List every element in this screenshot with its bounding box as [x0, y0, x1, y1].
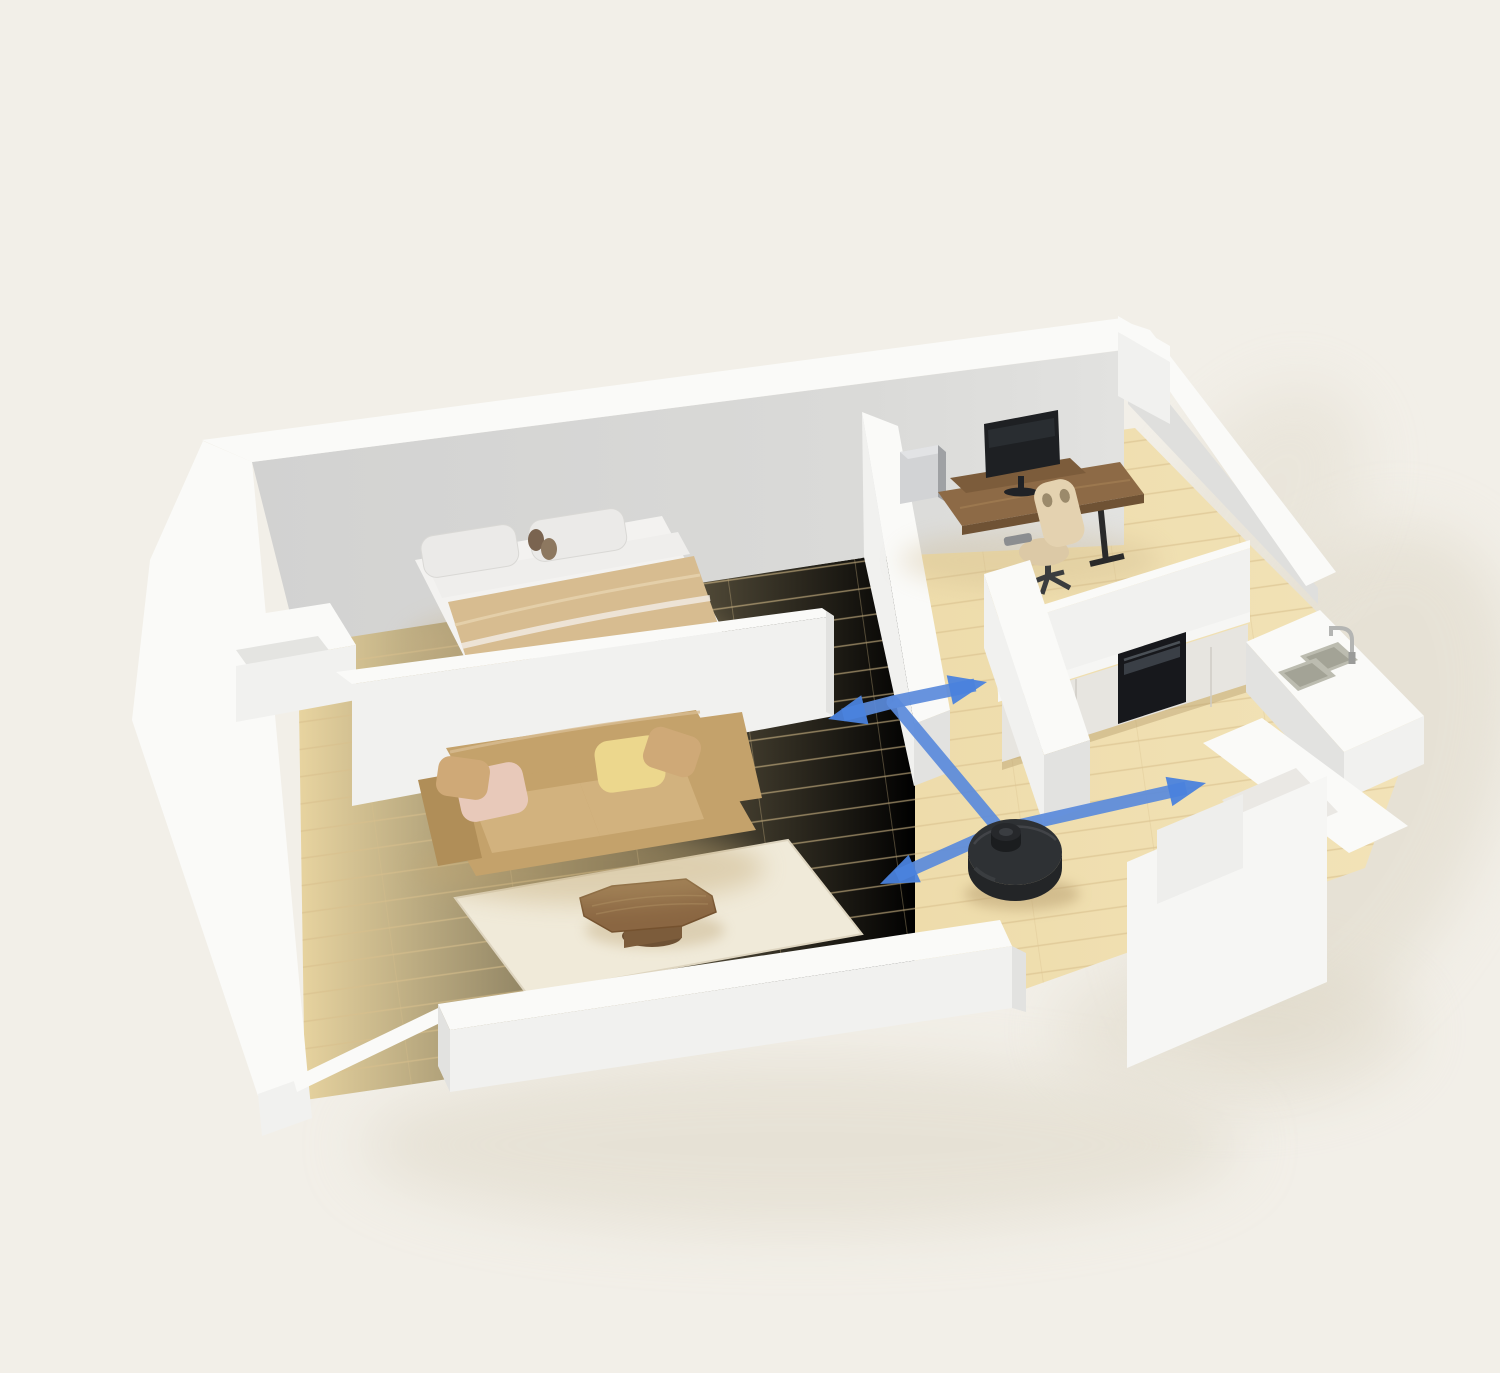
throw-pillow-tan-left — [434, 755, 491, 802]
headphones-earcup-right — [541, 538, 557, 560]
front-wall-end-cap — [1012, 946, 1026, 1012]
divider-end-cap — [826, 611, 834, 716]
monitor-base — [1004, 488, 1038, 497]
apartment-scene — [0, 0, 1500, 1373]
path-junction — [887, 696, 900, 709]
floorplan-render — [0, 0, 1500, 1373]
lidar-turret-cap — [999, 828, 1013, 836]
